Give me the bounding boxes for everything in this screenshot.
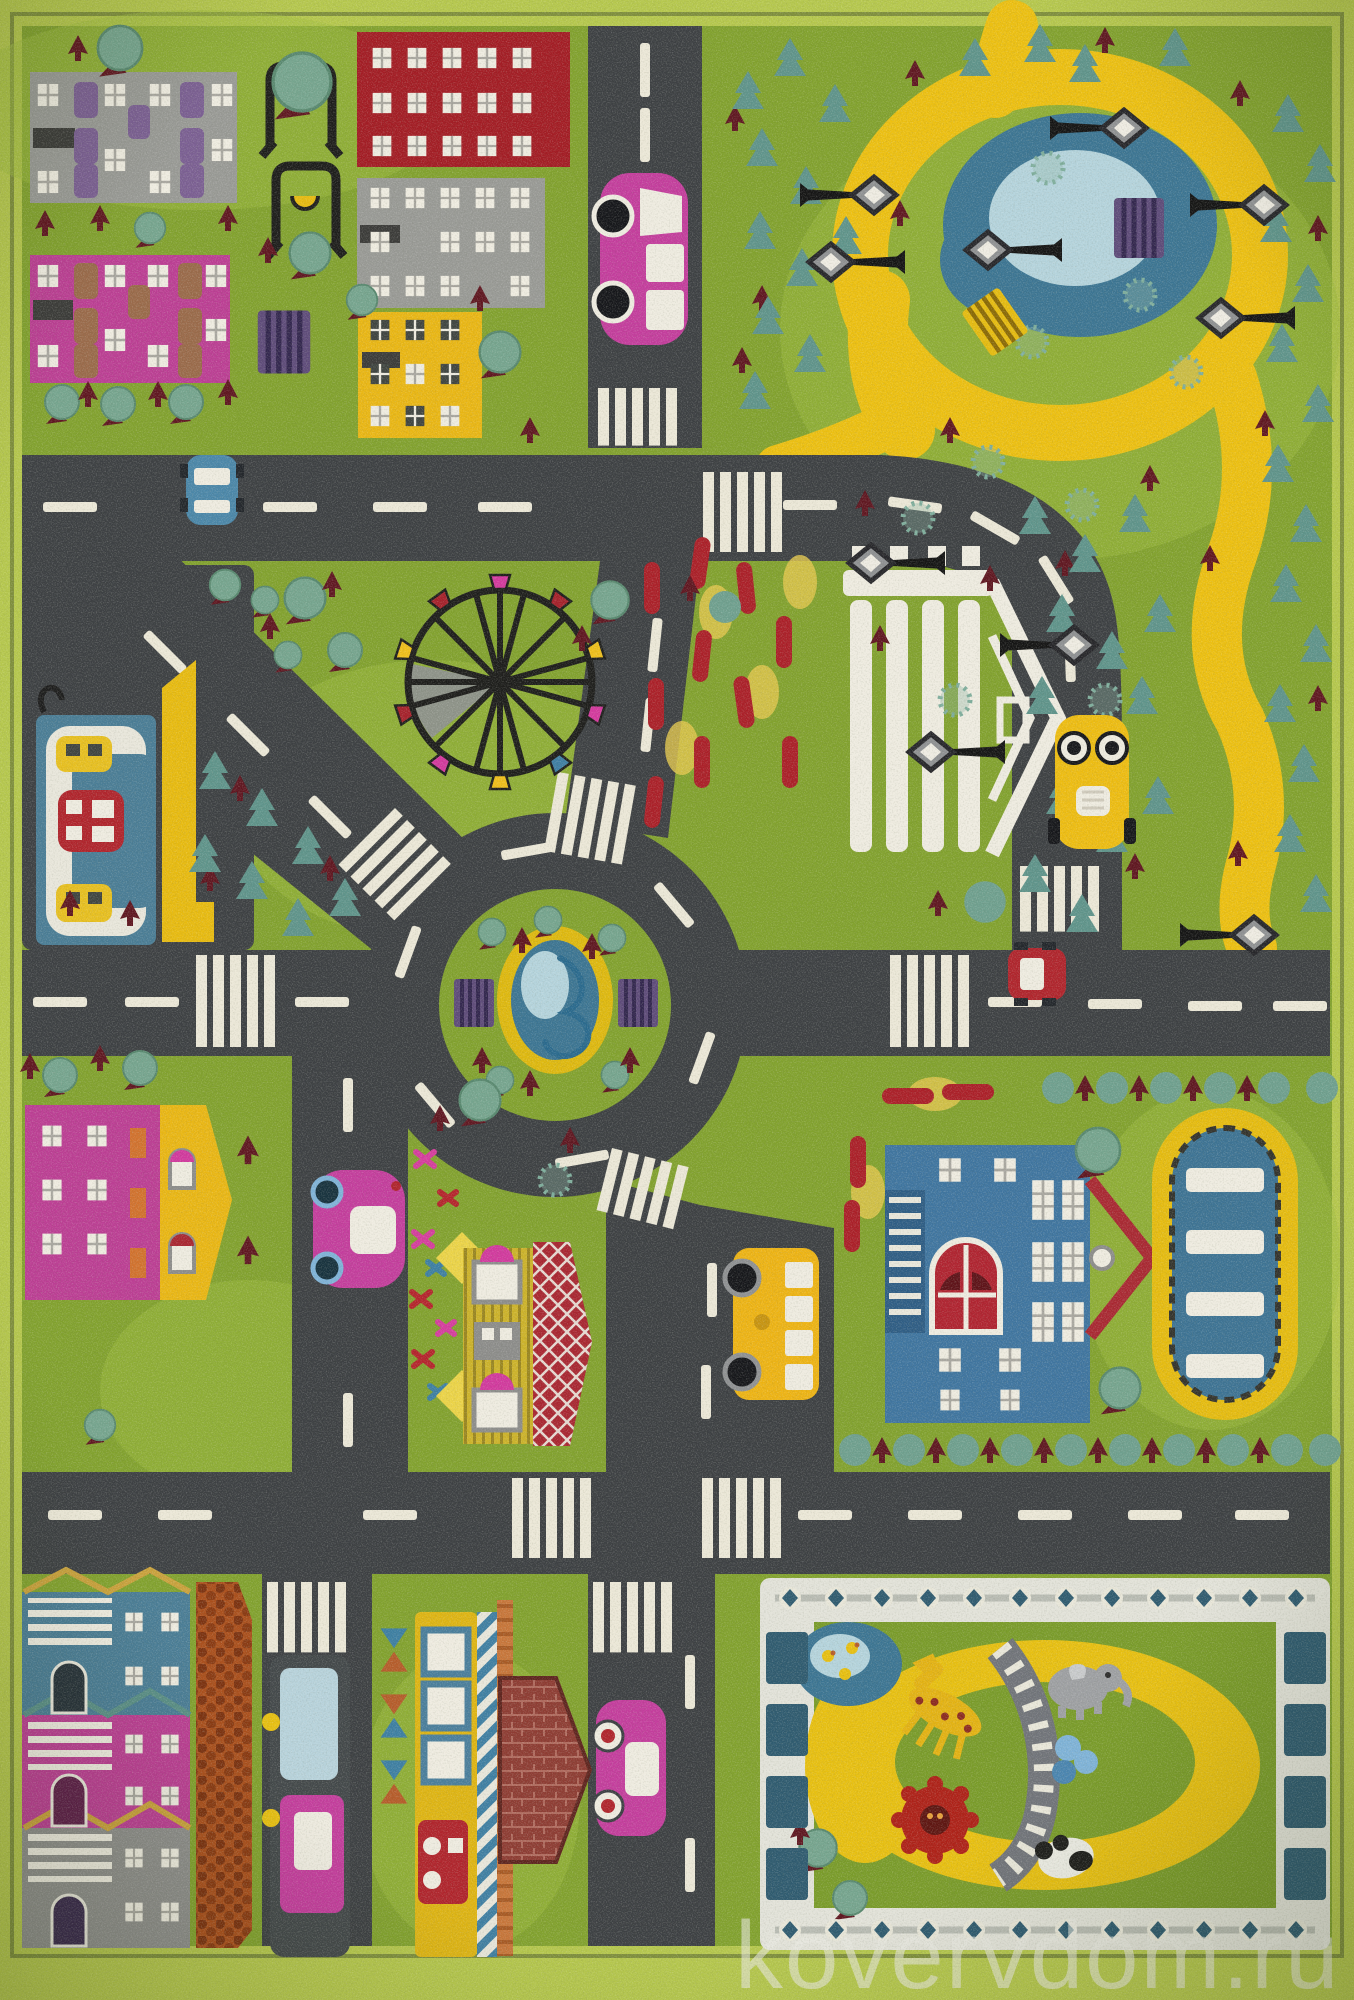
rug-illustration: kovervdom.ru xyxy=(0,0,1354,2000)
rug-photo: kovervdom.ru xyxy=(0,0,1354,2000)
vignette xyxy=(0,0,1354,2000)
